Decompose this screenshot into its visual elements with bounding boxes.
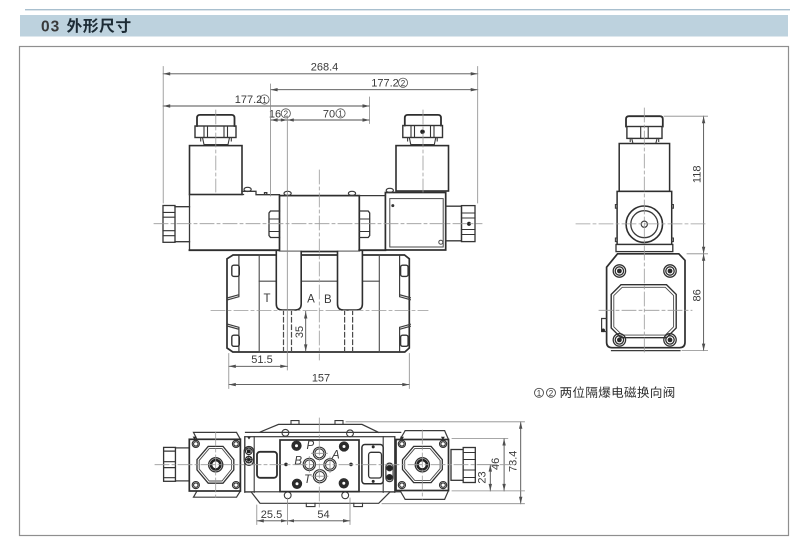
svg-text:2: 2 xyxy=(401,79,406,88)
svg-text:2: 2 xyxy=(284,110,289,119)
svg-text:B: B xyxy=(294,456,302,468)
svg-text:118: 118 xyxy=(692,166,704,184)
svg-text:177.2: 177.2 xyxy=(371,78,399,90)
svg-text:73.4: 73.4 xyxy=(507,451,519,472)
svg-text:1: 1 xyxy=(262,96,267,105)
svg-text:2: 2 xyxy=(549,389,554,398)
svg-text:23: 23 xyxy=(476,471,488,483)
svg-text:177.2: 177.2 xyxy=(235,94,263,106)
svg-text:268.4: 268.4 xyxy=(311,62,339,74)
svg-text:54: 54 xyxy=(317,509,329,521)
svg-text:P: P xyxy=(306,440,314,452)
svg-text:157: 157 xyxy=(312,372,330,384)
svg-text:A: A xyxy=(307,294,315,306)
svg-text:86: 86 xyxy=(692,289,704,301)
svg-text:1: 1 xyxy=(537,389,542,398)
svg-text:35: 35 xyxy=(294,326,306,338)
svg-text:25.5: 25.5 xyxy=(261,509,282,521)
svg-text:B: B xyxy=(324,294,332,306)
svg-text:03: 03 xyxy=(41,19,60,36)
svg-text:70: 70 xyxy=(323,108,335,120)
svg-text:1: 1 xyxy=(338,110,343,119)
svg-text:T: T xyxy=(304,474,312,486)
svg-text:A: A xyxy=(331,449,340,461)
svg-text:46: 46 xyxy=(490,458,502,470)
svg-text:51.5: 51.5 xyxy=(251,354,272,366)
svg-text:T: T xyxy=(263,293,270,305)
